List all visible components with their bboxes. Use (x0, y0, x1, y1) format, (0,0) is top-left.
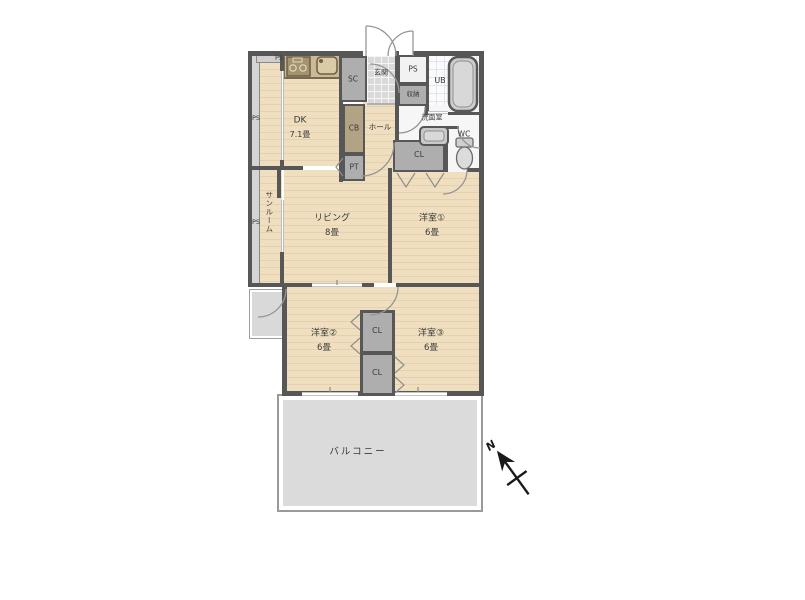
shoe-closet-label: SC (348, 75, 358, 83)
balcony-label: バルコニー (329, 447, 386, 457)
floor-plan: N PS PS PS サンルーム DK 7.1畳 SC 玄関 PS 収納 UB … (0, 0, 805, 600)
bedroom2-size-label: 6畳 (317, 344, 331, 353)
bedroom1-size-label: 6畳 (425, 229, 439, 238)
shelf-label: 収納 (407, 91, 420, 98)
wall (388, 168, 392, 283)
pipe-space-box-label: PS (408, 65, 417, 73)
entrance-door-arc (366, 26, 413, 56)
wall (280, 160, 284, 170)
washroom-label: 洗面室 (422, 115, 443, 122)
window (281, 71, 284, 160)
living-floor (284, 170, 388, 283)
closet-pocket-floor (360, 287, 395, 312)
living-label: リビング (314, 215, 350, 224)
closet-label: CL (414, 151, 424, 159)
window (390, 392, 447, 396)
bedroom1-label: 洋室① (419, 215, 445, 224)
kitchen-counter (283, 54, 343, 79)
compass-north-label: N (483, 438, 498, 454)
entrance-tile-floor (367, 56, 395, 104)
living-size-label: 8畳 (325, 229, 339, 238)
wall (362, 283, 374, 287)
wall (448, 112, 484, 115)
sliding-door (312, 283, 362, 287)
wall (277, 170, 281, 198)
bath-label: UB (434, 77, 445, 85)
bedroom3-size-label: 6畳 (424, 344, 438, 353)
hall-label: ホール (369, 123, 392, 131)
pantry-label: PT (349, 163, 358, 171)
bedroom3-floor (395, 287, 479, 391)
bedroom2-label: 洋室② (311, 330, 337, 339)
wall (280, 252, 284, 287)
entrance-step (367, 103, 395, 105)
compass-north-icon: N (479, 432, 538, 501)
wall (479, 51, 484, 396)
pipe-space-left-label: PS (252, 115, 260, 122)
entrance-label: 玄関 (374, 70, 388, 77)
closet-label: CL (372, 369, 382, 377)
dk-label: DK (294, 117, 307, 126)
toilet-label: WC (458, 130, 471, 138)
sunroom-porch-deck (252, 292, 284, 336)
bedroom3-label: 洋室③ (418, 330, 444, 339)
pipe-space-top-label: PS (275, 55, 283, 62)
window (281, 200, 284, 252)
window (302, 392, 358, 396)
wall (445, 126, 448, 172)
wall (282, 287, 287, 396)
cabinet-label: CB (349, 124, 359, 132)
dk-size-label: 7.1畳 (290, 131, 311, 139)
closet-label: CL (372, 327, 382, 335)
wall (467, 168, 484, 172)
pipe-space-left-label: PS (252, 219, 260, 226)
wall (396, 283, 484, 287)
bedroom2-floor (287, 287, 361, 391)
sunroom-label: サンルーム (265, 191, 273, 234)
